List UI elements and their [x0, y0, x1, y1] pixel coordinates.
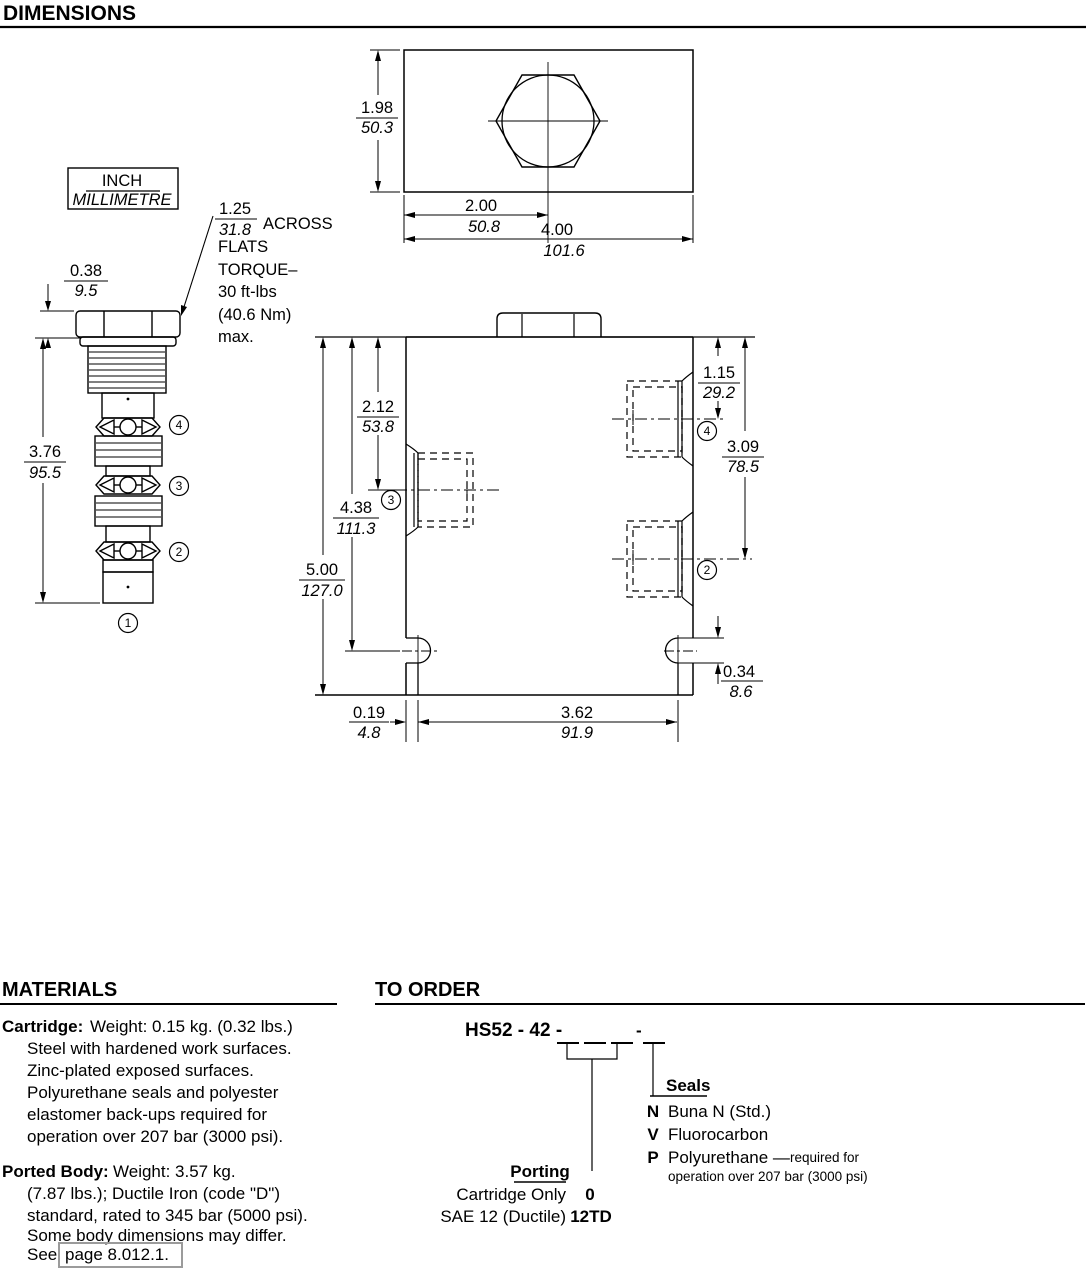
torque-in: 1.25 [219, 200, 251, 218]
dim-slot-h-mm: 8.6 [730, 683, 754, 701]
dim-top-height-mm: 50.3 [361, 119, 394, 137]
top-view-dimensions [370, 50, 693, 243]
order-code-dash: - [636, 1021, 642, 1040]
dim-body-h-mm: 127.0 [301, 582, 343, 600]
dim-port2-v-mm: 78.5 [727, 458, 760, 476]
materials-cartridge-line: Steel with hardened work surfaces. [27, 1039, 292, 1058]
dim-slot-off-mm: 4.8 [358, 724, 382, 742]
body-top-view [404, 50, 693, 243]
cartridge-port3-label: 3 [176, 479, 183, 493]
dimensions-header: DIMENSIONS [0, 2, 1086, 27]
port2-cavity [612, 512, 752, 606]
materials-body-label: Ported Body: [2, 1162, 109, 1181]
body-port4-label: 4 [704, 424, 711, 438]
units-legend-box: INCH MILLIMETRE [68, 168, 178, 209]
materials-section: MATERIALS Cartridge: Weight: 0.15 kg. (0… [0, 979, 337, 1267]
dim-slot-span-in: 3.62 [561, 704, 593, 722]
dim-top-height-in: 1.98 [361, 99, 393, 117]
seal-note-continued: operation over 207 bar (3000 psi) [668, 1169, 868, 1184]
body-front-view [315, 313, 755, 695]
page-link[interactable]: page 8.012.1. [65, 1245, 169, 1264]
dim-port3-v-mm: 53.8 [362, 418, 395, 436]
porting-option-name: Cartridge Only [456, 1185, 566, 1204]
technical-drawing-canvas: DIMENSIONS INCH MILLIMETRE [0, 0, 1088, 1270]
dim-slot-off-in: 0.19 [353, 704, 385, 722]
dim-cart-len-in: 3.76 [29, 443, 61, 461]
units-inch-label: INCH [102, 172, 142, 190]
porting-option-code: 12TD [570, 1207, 612, 1226]
order-leader-lines [567, 1043, 653, 1171]
datasheet-page: DIMENSIONS INCH MILLIMETRE [0, 0, 1088, 1270]
body-port2-label: 2 [704, 563, 711, 577]
dim-port4-v-in: 1.15 [703, 364, 735, 382]
seal-option-code: N [647, 1102, 659, 1121]
seals-label: Seals [666, 1076, 710, 1095]
materials-cartridge-line: Zinc-plated exposed surfaces. [27, 1061, 254, 1080]
dim-top-center-mm: 50.8 [468, 218, 501, 236]
seal-option-code: V [647, 1125, 659, 1144]
torque-max: max. [218, 328, 254, 346]
dim-port4-v-mm: 29.2 [702, 384, 735, 402]
seal-option-name: Buna N (Std.) [668, 1102, 771, 1121]
model-code: HS52 - 42 - [465, 1020, 562, 1041]
torque-flats: FLATS [218, 238, 268, 256]
to-order-section: TO ORDER HS52 - 42 - - Seals N Buna N (S… [375, 979, 1085, 1226]
torque-torque: TORQUE– [218, 261, 298, 279]
porting-option-name: SAE 12 (Ductile) [440, 1207, 566, 1226]
materials-cartridge-intro: Weight: 0.15 kg. (0.32 lbs.) [90, 1017, 293, 1036]
mounting-slot-left [402, 635, 440, 695]
torque-leader-arrow [181, 305, 187, 316]
dim-hex-h-in: 0.38 [70, 262, 102, 280]
porting-label: Porting [510, 1162, 570, 1181]
torque-note: 1.25 31.8 ACROSS FLATS TORQUE– 30 ft-lbs… [181, 200, 333, 346]
dim-port2-v-in: 3.09 [727, 438, 759, 456]
port3-cavity [395, 444, 500, 536]
dim-cart-len-mm: 95.5 [29, 464, 62, 482]
oring-band-2 [96, 542, 160, 560]
seal-option-name: Fluorocarbon [668, 1125, 768, 1144]
dim-top-width-mm: 101.6 [543, 242, 585, 260]
materials-see-label: See [27, 1245, 57, 1264]
cartridge-port1-label: 1 [125, 616, 132, 630]
thread-lines [89, 352, 165, 388]
torque-ftlbs: 30 ft-lbs [218, 283, 277, 301]
dim-slot-v-mm: 111.3 [337, 520, 377, 538]
dim-slot-span-mm: 91.9 [561, 724, 593, 742]
porting-option-code: 0 [585, 1185, 594, 1204]
materials-body-line: standard, rated to 345 bar (5000 psi). [27, 1206, 308, 1225]
materials-body-intro: Weight: 3.57 kg. [113, 1162, 236, 1181]
materials-title: MATERIALS [2, 979, 117, 1001]
dim-hex-h-mm: 9.5 [75, 282, 99, 300]
materials-cartridge-line: operation over 207 bar (3000 psi). [27, 1127, 283, 1146]
cartridge-port2-label: 2 [176, 545, 183, 559]
torque-across: ACROSS [263, 215, 333, 233]
seal-option-note: required for [790, 1150, 860, 1165]
dim-top-center-in: 2.00 [465, 197, 497, 215]
dim-port3-v-in: 2.12 [362, 398, 394, 416]
dim-body-h-in: 5.00 [306, 561, 338, 579]
dimensions-title: DIMENSIONS [3, 2, 136, 25]
materials-cartridge-label: Cartridge: [2, 1017, 83, 1036]
dim-slot-h-in: 0.34 [723, 663, 755, 681]
mounting-slot-right [664, 635, 724, 695]
cartridge-view [76, 311, 180, 603]
body-port3-label: 3 [388, 493, 395, 507]
materials-cartridge-line: Polyurethane seals and polyester [27, 1083, 279, 1102]
materials-cartridge-line: elastomer back-ups required for [27, 1105, 267, 1124]
dim-top-width-in: 4.00 [541, 221, 573, 239]
units-mm-label: MILLIMETRE [72, 191, 172, 209]
materials-body-line: (7.87 lbs.); Ductile Iron (code "D") [27, 1184, 280, 1203]
seal-option-code: P [647, 1148, 658, 1167]
top-view-dim-labels: 1.98 50.3 2.00 50.8 4.00 101.6 [356, 99, 585, 260]
body-dim-labels: 2.12 53.8 4.38 111.3 5.00 127.0 1.15 29.… [299, 364, 764, 742]
cartridge-port4-label: 4 [176, 418, 183, 432]
body-port-callouts: 3 4 2 [382, 422, 717, 580]
oring-band-4 [96, 418, 160, 436]
oring-band-3 [96, 476, 160, 494]
to-order-title: TO ORDER [375, 979, 481, 1001]
torque-nm: (40.6 Nm) [218, 306, 291, 324]
dim-slot-v-in: 4.38 [340, 499, 372, 517]
seal-option-name: Polyurethane — [668, 1148, 790, 1167]
torque-mm: 31.8 [219, 221, 252, 239]
